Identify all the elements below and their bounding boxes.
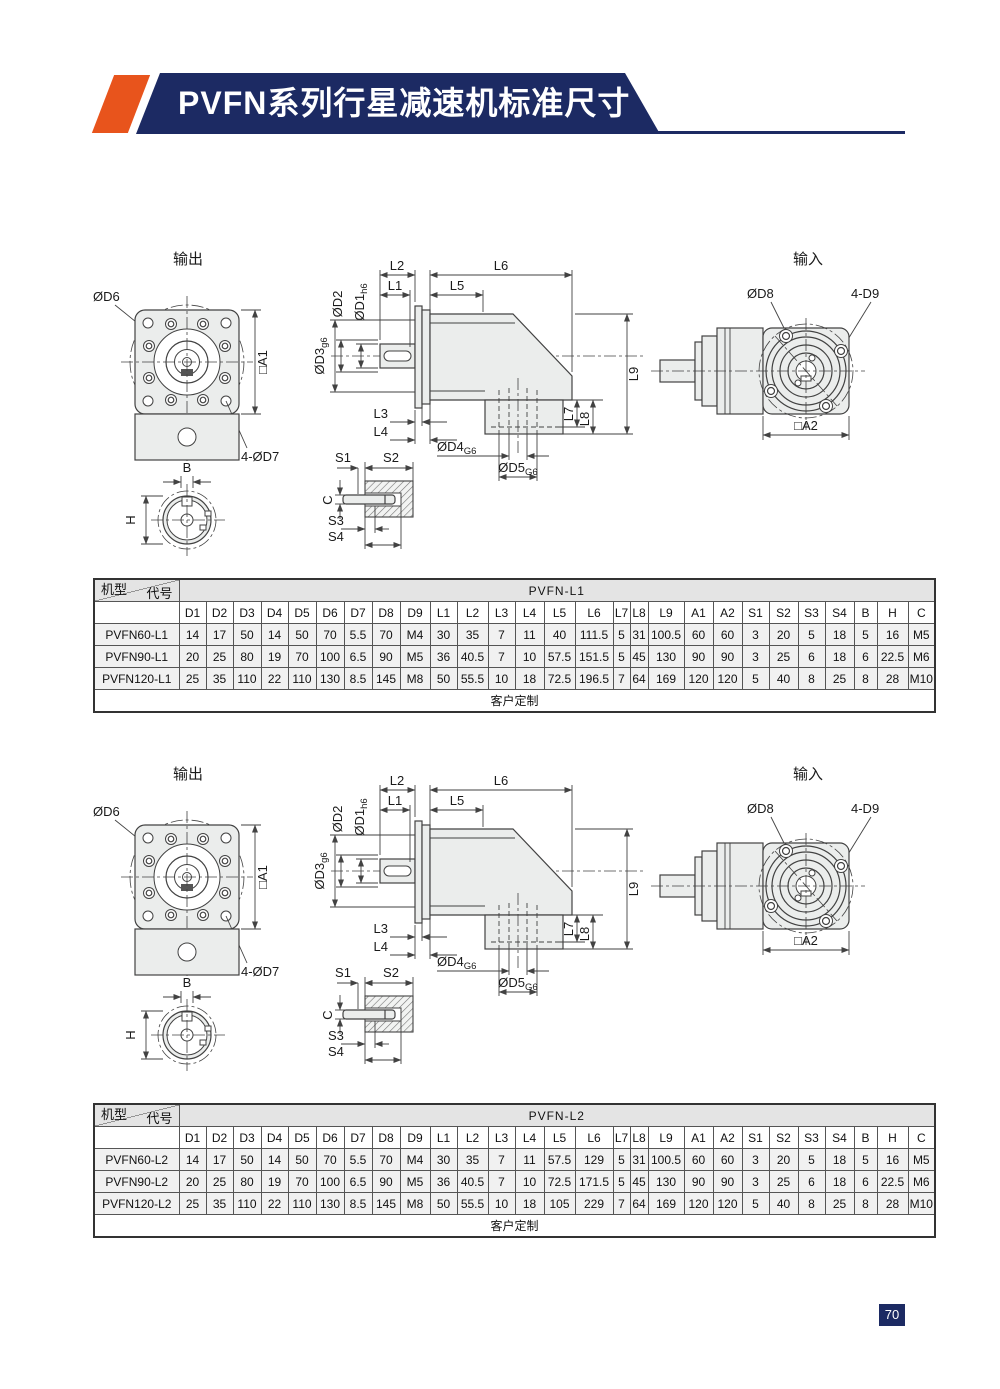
value-cell: 14 [261, 1149, 288, 1171]
value-cell: 90 [713, 1171, 742, 1193]
drawing-set-pvfn-l2: 输出 ØD6 [85, 763, 915, 1085]
column-header: B [854, 602, 877, 624]
value-cell: M10 [908, 668, 935, 690]
value-cell: 10 [488, 668, 515, 690]
value-cell: 50 [288, 1149, 316, 1171]
corner-label-code: 代号 [146, 1108, 172, 1127]
corner-label-model: 机型 [101, 1104, 127, 1123]
dim-label-l1: L1 [388, 793, 402, 808]
dim-label-s2: S2 [383, 450, 399, 465]
value-cell: 129 [575, 1149, 613, 1171]
table-title: PVFN-L1 [179, 579, 935, 602]
value-cell: 90 [684, 646, 713, 668]
value-cell: 35 [457, 624, 488, 646]
dim-label-s2: S2 [383, 965, 399, 980]
table-row: PVFN60-L11417501450705.570M4303571140111… [94, 624, 935, 646]
value-cell: 100 [316, 1171, 344, 1193]
value-cell: 35 [457, 1149, 488, 1171]
corner-label-model: 机型 [101, 579, 127, 598]
input-view-title: 输入 [793, 766, 823, 783]
dimension-table: 代号机型PVFN-L1D1D2D3D4D5D6D7D8D9L1L2L3L4L5L… [93, 578, 936, 713]
model-cell: PVFN120-L2 [94, 1193, 179, 1215]
column-header: L9 [648, 602, 684, 624]
value-cell: 17 [206, 1149, 233, 1171]
gearbox-dimension-drawing: 输出 ØD6 [85, 763, 915, 1085]
value-cell: 35 [206, 1193, 233, 1215]
value-cell: 145 [372, 1193, 400, 1215]
value-cell: 40 [544, 624, 575, 646]
value-cell: 57.5 [544, 1149, 575, 1171]
value-cell: 50 [430, 1193, 457, 1215]
dimension-table: 代号机型PVFN-L2D1D2D3D4D5D6D7D8D9L1L2L3L4L5L… [93, 1103, 936, 1238]
column-header: D8 [372, 1127, 400, 1149]
table-corner-cell: 代号机型 [94, 579, 179, 602]
column-header: S3 [798, 1127, 825, 1149]
housing-hole [178, 943, 196, 961]
dim-label-d7: 4-ØD7 [241, 964, 279, 979]
column-header: L3 [488, 602, 515, 624]
model-cell: PVFN60-L2 [94, 1149, 179, 1171]
value-cell: M4 [400, 624, 430, 646]
value-cell: 64 [630, 1193, 648, 1215]
value-cell: 55.5 [457, 668, 488, 690]
column-header: S1 [742, 602, 769, 624]
column-header: D1 [179, 1127, 206, 1149]
value-cell: 25 [769, 1171, 798, 1193]
column-header: D2 [206, 602, 233, 624]
dim-label-c: C [320, 495, 335, 504]
value-cell: 30 [430, 624, 457, 646]
value-cell: 45 [630, 1171, 648, 1193]
dim-label-d2: ØD2 [330, 291, 345, 318]
value-cell: 229 [575, 1193, 613, 1215]
value-cell: M10 [908, 1193, 935, 1215]
dim-label-d2: ØD2 [330, 806, 345, 833]
value-cell: 72.5 [544, 1171, 575, 1193]
pin [343, 1010, 395, 1019]
value-cell: 151.5 [575, 646, 613, 668]
dim-label-s1: S1 [335, 450, 351, 465]
value-cell: 40.5 [457, 1171, 488, 1193]
model-cell: PVFN90-L1 [94, 646, 179, 668]
value-cell: 80 [233, 1171, 261, 1193]
value-cell: 18 [825, 1149, 854, 1171]
value-cell: 60 [713, 624, 742, 646]
column-header: C [908, 602, 935, 624]
column-header: D8 [372, 602, 400, 624]
value-cell: 120 [684, 1193, 713, 1215]
drawing-set-pvfn-l1: 输出 ØD6 [85, 248, 915, 570]
value-cell: 8 [854, 668, 877, 690]
column-header: L6 [575, 1127, 613, 1149]
value-cell: 31 [630, 624, 648, 646]
column-header: L6 [575, 602, 613, 624]
column-header: S4 [825, 1127, 854, 1149]
column-header: L9 [648, 1127, 684, 1149]
value-cell: 130 [316, 668, 344, 690]
value-cell: 11 [515, 1149, 544, 1171]
value-cell: 35 [206, 668, 233, 690]
model-cell: PVFN60-L1 [94, 624, 179, 646]
column-header: D6 [316, 602, 344, 624]
value-cell: 100 [316, 646, 344, 668]
value-cell: 90 [372, 1171, 400, 1193]
table-title: PVFN-L2 [179, 1104, 935, 1127]
dim-label-l5: L5 [450, 278, 464, 293]
value-cell: 169 [648, 1193, 684, 1215]
dim-label-d7: 4-ØD7 [241, 449, 279, 464]
dim-label-l2: L2 [390, 258, 404, 273]
value-cell: 25 [825, 1193, 854, 1215]
value-cell: 70 [372, 624, 400, 646]
value-cell: 105 [544, 1193, 575, 1215]
value-cell: 40.5 [457, 646, 488, 668]
value-cell: 90 [713, 646, 742, 668]
value-cell: 6.5 [344, 1171, 372, 1193]
column-header: S1 [742, 1127, 769, 1149]
dim-label-d5g6: ØD5G6 [498, 460, 537, 478]
value-cell: 70 [288, 1171, 316, 1193]
value-cell: 14 [261, 624, 288, 646]
dim-label-d5g6: ØD5G6 [498, 975, 537, 993]
table-footer: 客户定制 [94, 690, 935, 713]
dim-label-d4g6: ØD4G6 [437, 954, 476, 972]
column-header: D3 [233, 602, 261, 624]
dim-label-l8: L8 [577, 927, 592, 941]
value-cell: 70 [316, 624, 344, 646]
table-corner-cell: 代号机型 [94, 1104, 179, 1127]
value-cell: 130 [648, 1171, 684, 1193]
column-header: H [877, 602, 908, 624]
column-header-row: D1D2D3D4D5D6D7D8D9L1L2L3L4L5L6L7L8L9A1A2… [94, 1127, 935, 1149]
value-cell: M5 [908, 624, 935, 646]
value-cell: 100.5 [648, 1149, 684, 1171]
value-cell: 5 [742, 668, 769, 690]
page-number-badge: 70 [879, 1304, 905, 1326]
value-cell: 6 [854, 646, 877, 668]
value-cell: 120 [684, 668, 713, 690]
column-header: D3 [233, 1127, 261, 1149]
value-cell: 25 [206, 1171, 233, 1193]
dim-label-d3g6: ØD3g6 [312, 337, 330, 374]
keyway-slot [384, 866, 411, 876]
dim-label-l9: L9 [626, 367, 641, 381]
dim-label-d3g6: ØD3g6 [312, 852, 330, 889]
column-header: D5 [288, 1127, 316, 1149]
value-cell: 40 [769, 1193, 798, 1215]
dimension-table-pvfn-l2: 代号机型PVFN-L2D1D2D3D4D5D6D7D8D9L1L2L3L4L5L… [93, 1103, 908, 1238]
dim-label-l3: L3 [374, 406, 388, 421]
value-cell: 18 [515, 668, 544, 690]
value-cell: 19 [261, 1171, 288, 1193]
dim-label-l4: L4 [374, 424, 388, 439]
value-cell: 5 [613, 1171, 630, 1193]
column-header: D7 [344, 602, 372, 624]
value-cell: 120 [713, 668, 742, 690]
input-cylinder [485, 400, 563, 434]
value-cell: 110 [233, 668, 261, 690]
value-cell: 14 [179, 624, 206, 646]
value-cell: 5.5 [344, 1149, 372, 1171]
value-cell: 10 [515, 646, 544, 668]
column-header: L7 [613, 1127, 630, 1149]
column-header: L1 [430, 602, 457, 624]
value-cell: M6 [908, 646, 935, 668]
value-cell: 25 [179, 668, 206, 690]
column-header: D9 [400, 1127, 430, 1149]
dim-label-l6: L6 [494, 773, 508, 788]
column-header: L3 [488, 1127, 515, 1149]
dim-label-d1h6: ØD1h6 [352, 798, 370, 835]
output-view-title: 输出 [173, 251, 203, 268]
dim-label-h: H [123, 1030, 138, 1039]
table-footer: 客户定制 [94, 1215, 935, 1238]
dim-label-s3: S3 [328, 513, 344, 528]
model-cell: PVFN120-L1 [94, 668, 179, 690]
value-cell: 6.5 [344, 646, 372, 668]
column-header: L4 [515, 1127, 544, 1149]
dim-label-a1: □A1 [255, 865, 270, 889]
housing-hole [178, 428, 196, 446]
value-cell: 45 [630, 646, 648, 668]
value-cell: 50 [430, 668, 457, 690]
value-cell: M5 [908, 1149, 935, 1171]
value-cell: 18 [515, 1193, 544, 1215]
value-cell: 145 [372, 668, 400, 690]
value-cell: M4 [400, 1149, 430, 1171]
column-header: A1 [684, 602, 713, 624]
gearbox-body [430, 314, 572, 400]
dim-label-s1: S1 [335, 965, 351, 980]
dim-label-l5: L5 [450, 793, 464, 808]
model-cell: PVFN90-L2 [94, 1171, 179, 1193]
value-cell: 20 [769, 1149, 798, 1171]
value-cell: 171.5 [575, 1171, 613, 1193]
value-cell: 5 [854, 624, 877, 646]
value-cell: 18 [825, 624, 854, 646]
table-row: PVFN60-L21417501450705.570M4303571157.51… [94, 1149, 935, 1171]
value-cell: 7 [488, 624, 515, 646]
shaft-end-view [151, 484, 225, 556]
column-header: L4 [515, 602, 544, 624]
value-cell: 196.5 [575, 668, 613, 690]
column-header: S4 [825, 602, 854, 624]
front-view-output: 输出 ØD6 [93, 251, 279, 556]
bushing-detail-view: S1 S2 C S3 S4 [320, 450, 413, 549]
column-header: L8 [630, 602, 648, 624]
value-cell: 8 [854, 1193, 877, 1215]
value-cell: M8 [400, 668, 430, 690]
dim-label-l2: L2 [390, 773, 404, 788]
dim-label-b: B [183, 460, 192, 475]
value-cell: M5 [400, 1171, 430, 1193]
value-cell: 5.5 [344, 624, 372, 646]
table-row: PVFN120-L22535110221101308.5145M85055.51… [94, 1193, 935, 1215]
value-cell: 40 [769, 668, 798, 690]
value-cell: 110 [288, 1193, 316, 1215]
column-header: L8 [630, 1127, 648, 1149]
value-cell: 7 [488, 646, 515, 668]
column-header: L7 [613, 602, 630, 624]
column-header: H [877, 1127, 908, 1149]
gearbox-dimension-drawing: 输出 ØD6 [85, 248, 915, 570]
value-cell: 60 [713, 1149, 742, 1171]
header-rule [652, 131, 905, 134]
dim-label-d6: ØD6 [93, 289, 120, 304]
value-cell: 70 [316, 1149, 344, 1171]
input-view-title: 输入 [793, 251, 823, 268]
value-cell: 5 [613, 646, 630, 668]
value-cell: 72.5 [544, 668, 575, 690]
value-cell: 110 [288, 668, 316, 690]
value-cell: 5 [798, 1149, 825, 1171]
value-cell: 57.5 [544, 646, 575, 668]
value-cell: 10 [488, 1193, 515, 1215]
dim-label-l4: L4 [374, 939, 388, 954]
dim-label-l1: L1 [388, 278, 402, 293]
dim-label-d6: ØD6 [93, 804, 120, 819]
value-cell: 7 [488, 1149, 515, 1171]
value-cell: 6 [798, 646, 825, 668]
dim-label-l8: L8 [577, 412, 592, 426]
value-cell: 100.5 [648, 624, 684, 646]
column-header: D6 [316, 1127, 344, 1149]
catalog-page: PVFN系列行星减速机标准尺寸 输出 ØD6 [0, 0, 1000, 1389]
side-view: L2 L6 L1 L5 ØD2 ØD1h6 ØD3g6 L3 L4 [312, 258, 643, 481]
column-header: D2 [206, 1127, 233, 1149]
column-header: A1 [684, 1127, 713, 1149]
dim-label-l9: L9 [626, 882, 641, 896]
value-cell: 60 [684, 1149, 713, 1171]
value-cell: 17 [206, 624, 233, 646]
column-header: L1 [430, 1127, 457, 1149]
dim-label-a2: □A2 [794, 418, 818, 433]
value-cell: 20 [179, 646, 206, 668]
blank-cell [94, 1127, 179, 1149]
value-cell: 130 [316, 1193, 344, 1215]
column-header: D1 [179, 602, 206, 624]
column-header: S3 [798, 602, 825, 624]
table-row: PVFN120-L12535110221101308.5145M85055.51… [94, 668, 935, 690]
dimension-table-pvfn-l1: 代号机型PVFN-L1D1D2D3D4D5D6D7D8D9L1L2L3L4L5L… [93, 578, 908, 713]
value-cell: 25 [825, 668, 854, 690]
value-cell: 25 [769, 646, 798, 668]
value-cell: 22 [261, 1193, 288, 1215]
dim-label-d1h6: ØD1h6 [352, 283, 370, 320]
value-cell: 22 [261, 668, 288, 690]
dim-label-c: C [320, 1010, 335, 1019]
value-cell: 5 [798, 624, 825, 646]
dim-label-d9: 4-D9 [851, 801, 879, 816]
rear-view-input: 输入 ØD8 4-D9 □A2 [651, 766, 879, 955]
value-cell: 3 [742, 1171, 769, 1193]
dim-label-d9: 4-D9 [851, 286, 879, 301]
column-header: L2 [457, 602, 488, 624]
column-header: D4 [261, 602, 288, 624]
column-header: S2 [769, 1127, 798, 1149]
value-cell: 14 [179, 1149, 206, 1171]
value-cell: 50 [288, 624, 316, 646]
bushing-detail-view: S1 S2 C S3 S4 [320, 965, 413, 1064]
dim-label-d8: ØD8 [747, 286, 774, 301]
value-cell: 5 [613, 624, 630, 646]
value-cell: 110 [233, 1193, 261, 1215]
value-cell: 6 [798, 1171, 825, 1193]
dim-label-l6: L6 [494, 258, 508, 273]
dim-label-s3: S3 [328, 1028, 344, 1043]
value-cell: 5 [854, 1149, 877, 1171]
dim-label-l3: L3 [374, 921, 388, 936]
front-view-output: 输出 ØD6 [93, 766, 279, 1071]
column-header: D9 [400, 602, 430, 624]
value-cell: 5 [742, 1193, 769, 1215]
value-cell: 120 [713, 1193, 742, 1215]
blank-cell [94, 602, 179, 624]
dim-label-a1: □A1 [255, 350, 270, 374]
side-view: L2 L6 L1 L5 ØD2 ØD1h6 ØD3g6 L3 L4 [312, 773, 643, 996]
value-cell: 22.5 [877, 1171, 908, 1193]
value-cell: 16 [877, 1149, 908, 1171]
value-cell: 111.5 [575, 624, 613, 646]
column-header: L2 [457, 1127, 488, 1149]
value-cell: 8 [798, 1193, 825, 1215]
shaft-end-view [151, 999, 225, 1071]
value-cell: 8 [798, 668, 825, 690]
rear-view-input: 输入 ØD8 4-D9 □A2 [651, 251, 879, 440]
column-header: S2 [769, 602, 798, 624]
corner-label-code: 代号 [146, 583, 172, 602]
flange-plate [422, 825, 430, 919]
value-cell: 6 [854, 1171, 877, 1193]
value-cell: 7 [613, 1193, 630, 1215]
dim-label-h: H [123, 515, 138, 524]
value-cell: 55.5 [457, 1193, 488, 1215]
dim-label-d4g6: ØD4G6 [437, 439, 476, 457]
value-cell: 10 [515, 1171, 544, 1193]
value-cell: 20 [769, 624, 798, 646]
value-cell: 7 [613, 668, 630, 690]
value-cell: 25 [206, 646, 233, 668]
dim-label-l7: L7 [561, 407, 576, 421]
footer-row: 客户定制 [94, 1215, 935, 1238]
value-cell: 8.5 [344, 1193, 372, 1215]
value-cell: 70 [372, 1149, 400, 1171]
value-cell: 18 [825, 1171, 854, 1193]
keyway-slot [384, 351, 411, 361]
dim-label-a2: □A2 [794, 933, 818, 948]
column-header: L5 [544, 602, 575, 624]
column-header-row: D1D2D3D4D5D6D7D8D9L1L2L3L4L5L6L7L8L9A1A2… [94, 602, 935, 624]
value-cell: 64 [630, 668, 648, 690]
value-cell: 50 [233, 1149, 261, 1171]
column-header: D7 [344, 1127, 372, 1149]
value-cell: 3 [742, 646, 769, 668]
table-row: PVFN90-L220258019701006.590M53640.571072… [94, 1171, 935, 1193]
gearbox-body [430, 829, 572, 915]
value-cell: M8 [400, 1193, 430, 1215]
value-cell: 90 [684, 1171, 713, 1193]
column-header: C [908, 1127, 935, 1149]
page-title: PVFN系列行星减速机标准尺寸 [136, 73, 660, 133]
value-cell: 80 [233, 646, 261, 668]
input-cylinder [485, 915, 563, 949]
column-header: A2 [713, 602, 742, 624]
dim-label-d8: ØD8 [747, 801, 774, 816]
value-cell: 19 [261, 646, 288, 668]
value-cell: 90 [372, 646, 400, 668]
value-cell: M6 [908, 1171, 935, 1193]
footer-row: 客户定制 [94, 690, 935, 713]
